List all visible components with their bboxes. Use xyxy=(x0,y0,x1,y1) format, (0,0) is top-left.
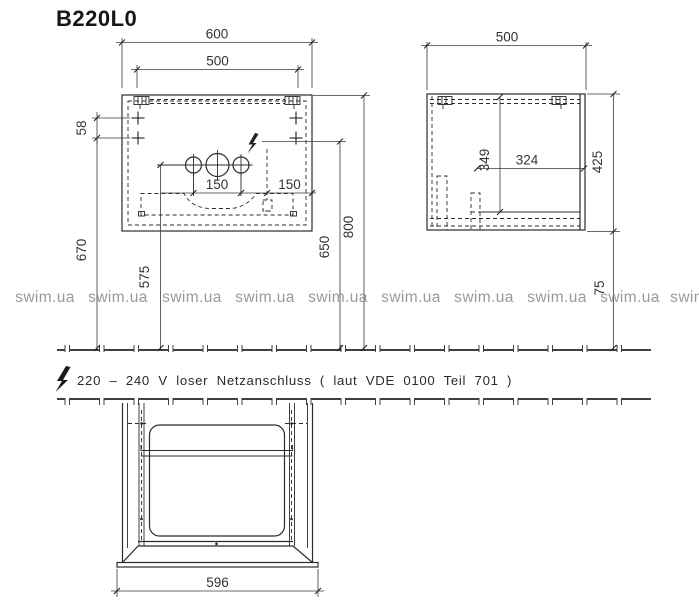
front-power-box-dashed xyxy=(263,200,272,211)
svg-text:150: 150 xyxy=(278,177,301,192)
front-hanging-rail xyxy=(150,100,285,104)
plan-plinth xyxy=(117,563,318,568)
front-hanger-bracket-left xyxy=(134,97,149,110)
front-basin-foot-left xyxy=(139,212,145,217)
dim-front-height-total: 800 xyxy=(313,93,370,352)
wall-hatch-band xyxy=(57,398,651,405)
watermark: swim.ua xyxy=(235,289,295,306)
lightning-bolt-icon xyxy=(248,133,259,154)
front-basin-foot-right xyxy=(291,212,297,217)
plan-basin-outline xyxy=(150,425,285,536)
dim-front-width-hangers: 500 xyxy=(131,54,304,89)
svg-text:650: 650 xyxy=(317,236,332,259)
svg-text:349: 349 xyxy=(477,149,492,172)
watermark: swim.ua xyxy=(670,289,699,306)
side-hanger-bracket-left xyxy=(438,97,452,110)
drawing-title: B220L0 xyxy=(56,6,137,32)
front-hanger-bracket-right xyxy=(285,97,300,110)
side-view: 500 349 324 42 xyxy=(421,30,620,352)
floor-hatch-band xyxy=(57,345,651,352)
svg-text:600: 600 xyxy=(206,27,229,42)
side-trap-dashed-left xyxy=(437,176,447,230)
watermark: swim.ua xyxy=(527,289,587,306)
dim-side-body-height: 425 xyxy=(587,91,620,235)
dim-front-height-power: 650 xyxy=(262,139,346,352)
technical-drawing-sheet: B220L0 xyxy=(0,0,699,600)
svg-text:324: 324 xyxy=(516,153,539,168)
front-fixing-holes xyxy=(132,112,303,145)
svg-text:425: 425 xyxy=(590,151,605,174)
watermark: swim.ua xyxy=(600,289,660,306)
plan-mid-rail xyxy=(141,445,293,456)
dim-side-inner-height: 349 xyxy=(477,94,503,215)
side-top-rail-dashed xyxy=(430,100,580,104)
dim-side-depth: 500 xyxy=(421,30,592,91)
watermark: swim.ua xyxy=(15,289,75,306)
svg-text:500: 500 xyxy=(206,54,229,69)
side-hanger-bracket-right xyxy=(552,97,566,110)
watermark: swim.ua xyxy=(381,289,441,306)
watermark: swim.ua xyxy=(88,289,148,306)
side-bottom-rail-dashed xyxy=(430,219,580,227)
side-cabinet-outline xyxy=(427,94,585,230)
front-cabinet-inner-dashed xyxy=(128,101,306,225)
plan-detail-dots xyxy=(140,422,293,545)
svg-text:670: 670 xyxy=(74,239,89,262)
svg-text:150: 150 xyxy=(206,177,229,192)
side-trap-dashed-step xyxy=(471,193,480,230)
dim-front-height-taps: 575 xyxy=(137,162,164,351)
svg-text:596: 596 xyxy=(206,575,229,590)
dim-plan-width: 596 xyxy=(111,569,324,597)
power-note-text: 220 – 240 V loser Netzanschluss ( laut V… xyxy=(77,373,512,388)
dim-front-height-fixing: 670 xyxy=(74,138,100,351)
svg-text:58: 58 xyxy=(74,120,89,135)
plan-view: 596 xyxy=(111,403,324,597)
drawing-canvas: 600 500 58 xyxy=(0,0,699,600)
watermark: swim.ua xyxy=(162,289,222,306)
svg-text:800: 800 xyxy=(341,216,356,239)
power-note: 220 – 240 V loser Netzanschluss ( laut V… xyxy=(56,366,513,392)
svg-text:500: 500 xyxy=(496,30,519,45)
watermark: swim.ua xyxy=(308,289,368,306)
plan-front-panel xyxy=(123,542,313,563)
watermark: swim.ua xyxy=(454,289,514,306)
dim-front-tap-spacing: 150 150 xyxy=(161,174,317,196)
lightning-bolt-icon xyxy=(56,366,71,392)
svg-text:575: 575 xyxy=(137,266,152,289)
front-cabinet-outline xyxy=(122,95,312,231)
front-basin-dashed-outline xyxy=(141,194,293,216)
